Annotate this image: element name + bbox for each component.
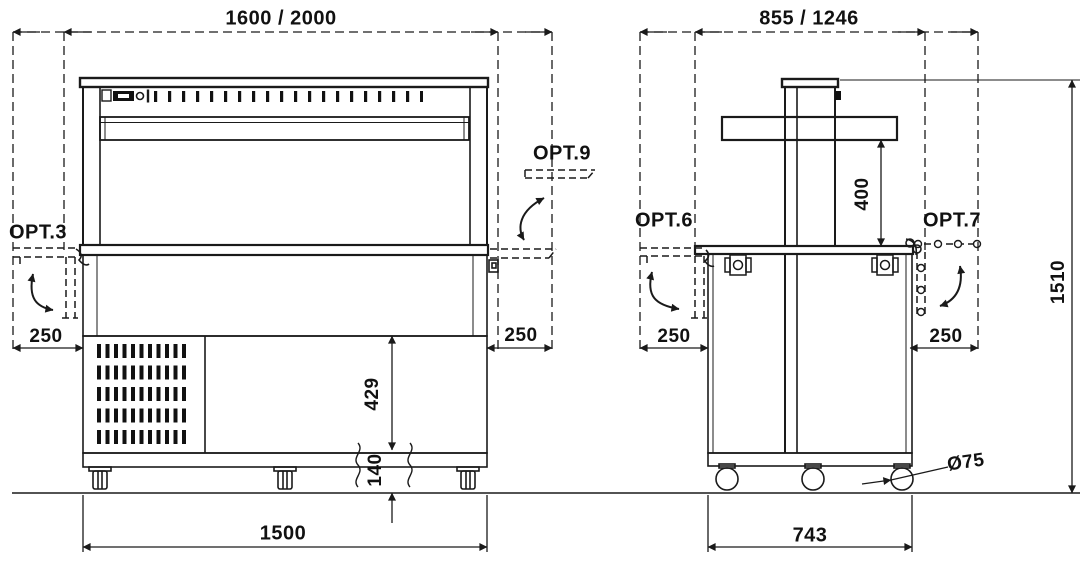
side-left-shelf-depth-dim: 250: [657, 326, 690, 348]
light-strip: [100, 117, 469, 140]
canopy-vent-slots: [154, 91, 423, 102]
drawing-linework: [0, 0, 1092, 570]
front-right-shelf-depth-dim: 250: [504, 325, 537, 347]
front-left-shelf-depth-dim: 250: [29, 326, 62, 348]
break-line: [356, 443, 360, 487]
side-top-depth-dim: 855 / 1246: [759, 8, 859, 31]
front-view-body: [80, 78, 488, 489]
side-right-shelf-depth-dim: 250: [929, 326, 962, 348]
base-vent-grille: [97, 344, 190, 446]
front-casters: [89, 467, 479, 489]
break-line: [408, 443, 412, 487]
front-top-width-dim: 1600 / 2000: [225, 8, 336, 31]
counter-clamps: [725, 255, 898, 275]
overall-height-dim: 1510: [1048, 260, 1070, 304]
opt9-label: OPT.9: [533, 143, 591, 166]
side-casters: [716, 464, 913, 490]
side-view-body: [695, 79, 913, 490]
canopy-height-dim: 400: [852, 177, 874, 210]
front-base-width-dim: 1500: [260, 523, 307, 546]
control-panel: [102, 90, 148, 103]
caster-height-dim: 140: [365, 453, 387, 486]
opt3-label: OPT.3: [9, 222, 67, 245]
side-base-depth-dim: 743: [793, 525, 828, 548]
opt6-label: OPT.6: [635, 210, 693, 233]
opt7-label: OPT.7: [923, 210, 981, 233]
body-height-dim: 429: [362, 377, 384, 410]
technical-drawing-canvas: 1600 / 2000 855 / 1246 OPT.3 OPT.9 OPT.6…: [0, 0, 1092, 570]
